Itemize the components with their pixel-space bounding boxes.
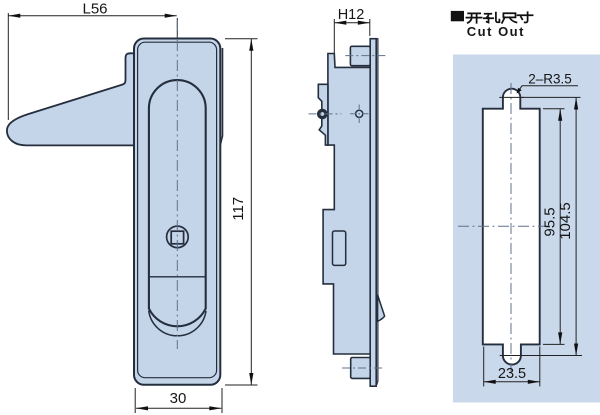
svg-text:95.5: 95.5 (542, 207, 559, 236)
svg-text:104.5: 104.5 (557, 202, 574, 240)
svg-text:2–R3.5: 2–R3.5 (528, 72, 572, 87)
svg-text:H12: H12 (338, 7, 365, 23)
svg-text:23.5: 23.5 (498, 366, 526, 382)
svg-text:Cut Out: Cut Out (467, 24, 525, 39)
svg-text:30: 30 (170, 390, 187, 407)
svg-text:117: 117 (230, 197, 247, 221)
svg-text:L56: L56 (82, 1, 107, 18)
